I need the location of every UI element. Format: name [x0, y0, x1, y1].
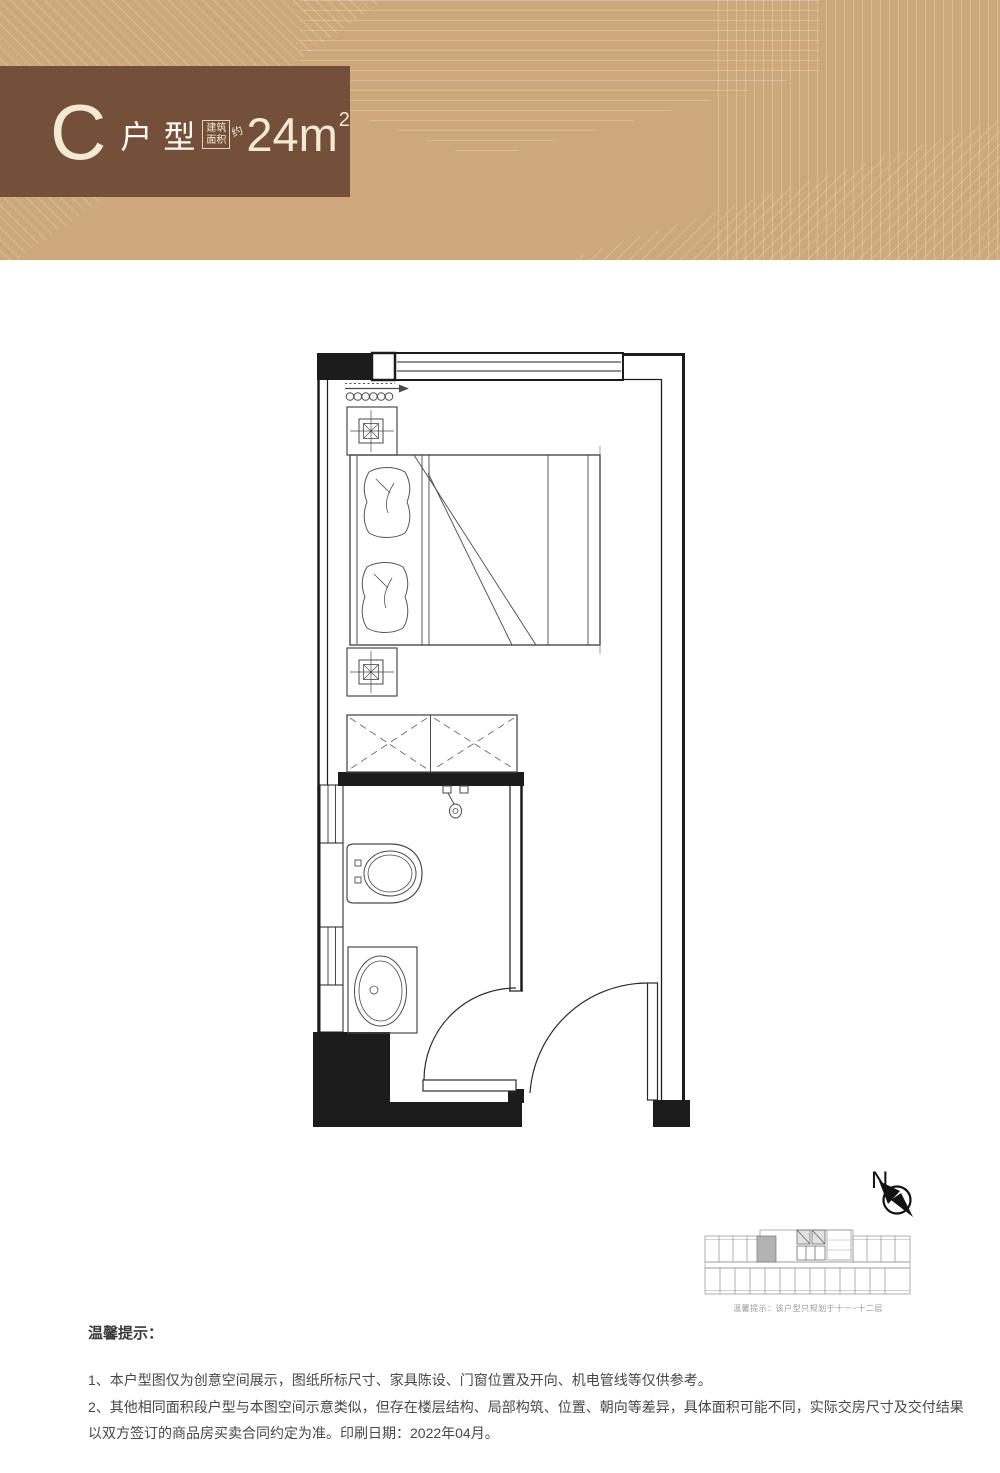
key-plan: [693, 1222, 923, 1302]
key-plan-cores: [797, 1230, 851, 1260]
key-plan-highlight: [757, 1236, 776, 1262]
notes-section: 温馨提示： 1、本户型图仅为创意空间展示，图纸所标尺寸、家具陈设、门窗位置及开向…: [88, 1322, 968, 1447]
area-label-box: 建筑 面积: [202, 120, 230, 149]
compass-icon: N: [855, 1160, 935, 1230]
solid-walls: [313, 353, 690, 1127]
shower-head: [443, 786, 468, 818]
bathroom-door: [423, 988, 516, 1091]
toilet: [347, 844, 422, 903]
wash-basin: [348, 947, 417, 1033]
notes-title: 温馨提示：: [88, 1322, 968, 1343]
brochure-page: C 户型 建筑 面积 约 24m 2: [0, 0, 1000, 1473]
unit-type-label: 户型: [120, 112, 206, 158]
area-exponent: 2: [339, 109, 350, 132]
wardrobe: [347, 715, 517, 772]
area-approx-label: 约: [230, 121, 246, 140]
pillow: [364, 468, 410, 538]
outline-walls: [319, 353, 686, 1127]
floor-plan: [310, 345, 690, 1135]
curtain-arrow: [345, 384, 409, 401]
nightstand-lamp: [347, 407, 397, 455]
note-item-2: 2、其他相同面积段户型与本图空间示意类似，但存在楼层结构、局部构筑、位置、朝向等…: [88, 1394, 968, 1446]
area-group: 建筑 面积 约 24m 2: [202, 111, 350, 158]
note-item-1: 1、本户型图仅为创意空间展示，图纸所标尺寸、家具陈设、门窗位置及开向、机电管线等…: [88, 1367, 968, 1393]
area-value: 24m: [246, 111, 337, 158]
pillow: [362, 563, 408, 633]
area-label-line2: 面积: [206, 135, 226, 146]
nightstand-lamp: [347, 648, 397, 696]
area-label-line1: 建筑: [206, 123, 226, 134]
entry-door: [530, 983, 658, 1100]
unit-title-box: C 户型 建筑 面积 约 24m 2: [0, 66, 350, 197]
key-plan-caption: 温馨提示：该户型只规划于十一~十二层: [693, 1303, 923, 1314]
unit-letter: C: [50, 93, 106, 171]
